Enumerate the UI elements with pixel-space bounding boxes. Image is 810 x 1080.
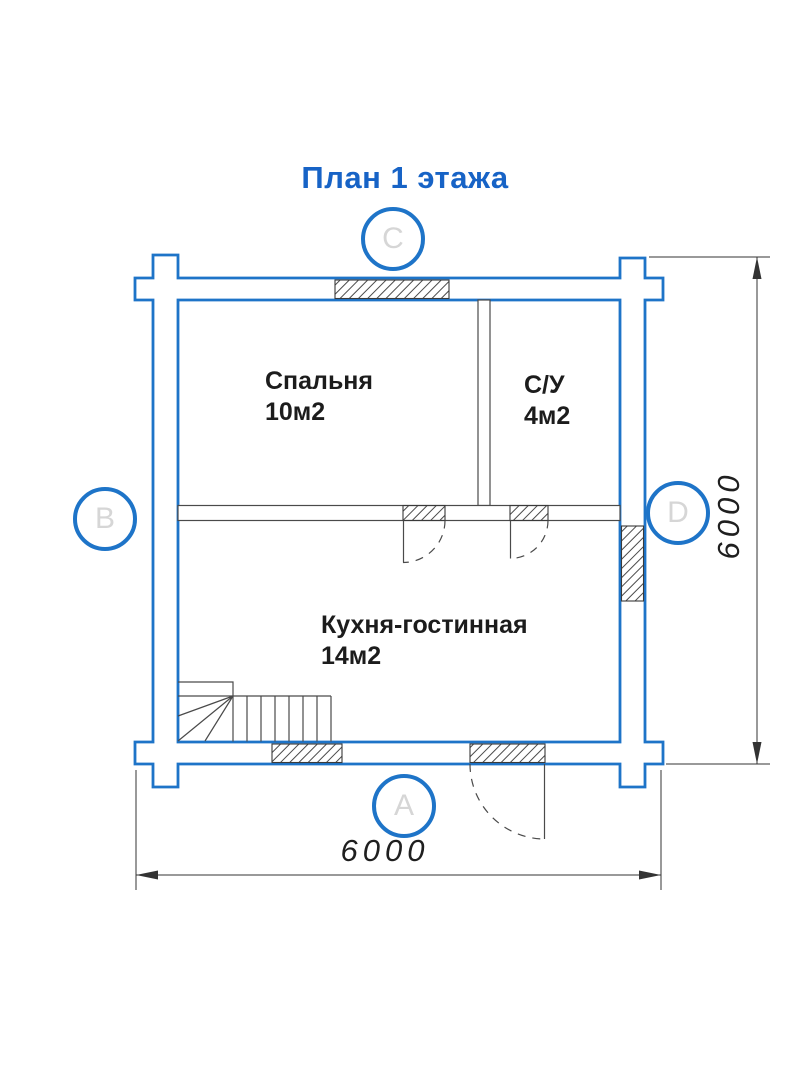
dimension-lines bbox=[136, 257, 770, 890]
exterior-walls bbox=[135, 255, 663, 787]
axis-letter-a: A bbox=[394, 791, 414, 821]
floor-plan-page: План 1 этажа bbox=[0, 0, 810, 1080]
axis-marker-c: C bbox=[361, 207, 425, 271]
axis-marker-d: D bbox=[646, 481, 710, 545]
door-interior-1 bbox=[403, 506, 445, 563]
page-title: План 1 этажа bbox=[0, 160, 810, 196]
room-name: Кухня-гостинная bbox=[321, 610, 528, 641]
window-top bbox=[335, 280, 449, 299]
room-name: Спальня bbox=[265, 366, 373, 397]
staircase bbox=[178, 682, 331, 742]
room-area: 14м2 bbox=[321, 641, 528, 672]
axis-marker-b: B bbox=[73, 487, 137, 551]
room-label-kitchen: Кухня-гостинная 14м2 bbox=[321, 610, 528, 672]
door-entrance bbox=[470, 744, 545, 839]
axis-letter-c: C bbox=[382, 224, 404, 254]
dimension-right: 6000 bbox=[711, 471, 747, 560]
axis-marker-a: A bbox=[372, 774, 436, 838]
room-area: 4м2 bbox=[524, 401, 570, 432]
room-name: С/У bbox=[524, 370, 570, 401]
room-area: 10м2 bbox=[265, 397, 373, 428]
axis-letter-b: B bbox=[95, 504, 115, 534]
room-label-bathroom: С/У 4м2 bbox=[524, 370, 570, 432]
window-bottom bbox=[272, 744, 342, 763]
door-interior-2 bbox=[510, 506, 548, 559]
dimension-bottom: 6000 bbox=[341, 833, 430, 869]
window-right bbox=[622, 526, 644, 601]
axis-letter-d: D bbox=[667, 498, 689, 528]
room-label-bedroom: Спальня 10м2 bbox=[265, 366, 373, 428]
